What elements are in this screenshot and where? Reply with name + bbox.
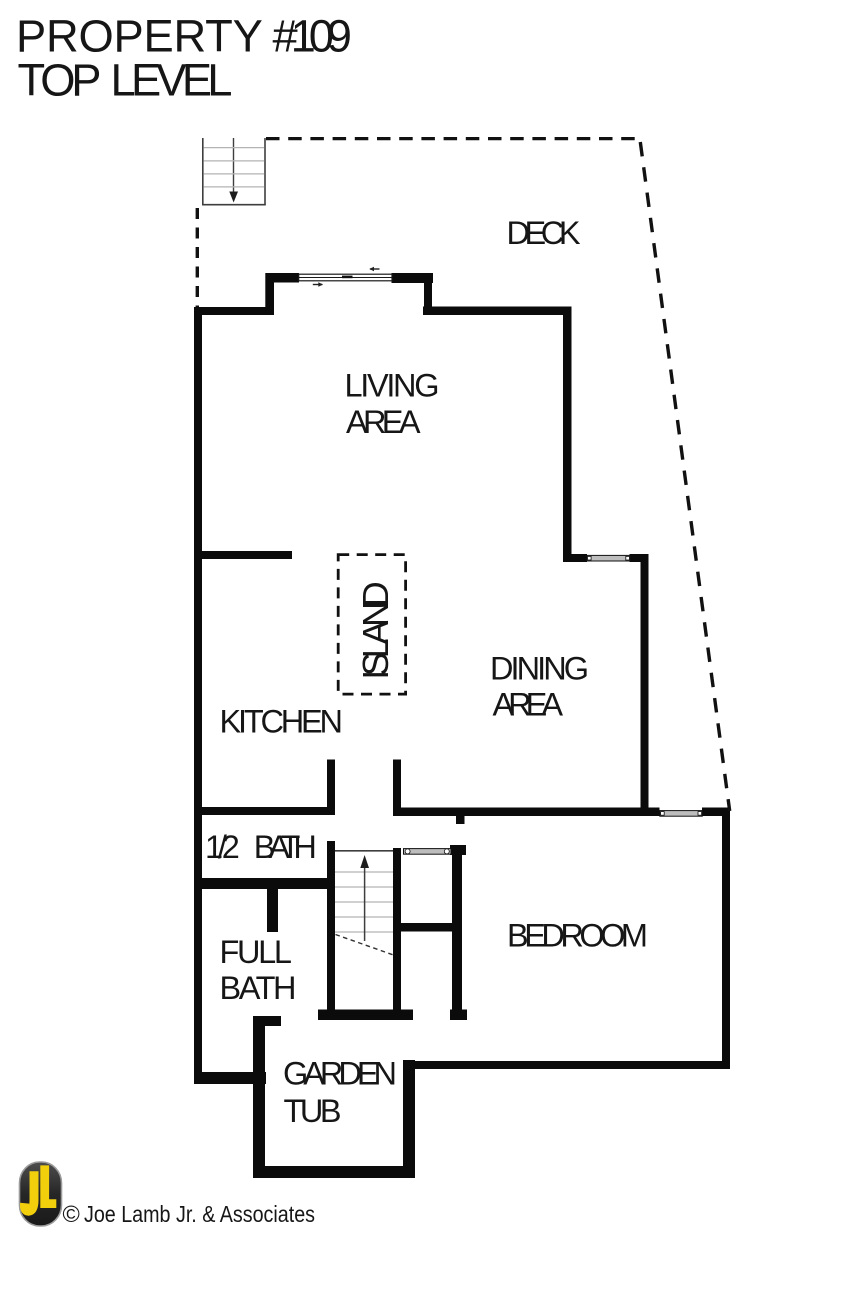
svg-text:AREA: AREA bbox=[493, 687, 564, 723]
svg-text:KITCHEN: KITCHEN bbox=[220, 704, 344, 740]
svg-text:LIVING: LIVING bbox=[345, 368, 440, 404]
svg-text:TUB: TUB bbox=[284, 1093, 342, 1129]
svg-text:DINING: DINING bbox=[490, 650, 589, 686]
svg-text:BATH: BATH bbox=[254, 829, 317, 865]
svg-text:©: © bbox=[63, 1201, 80, 1227]
svg-text:AREA: AREA bbox=[346, 404, 421, 440]
svg-text:BEDROOM: BEDROOM bbox=[507, 917, 648, 953]
svg-text:FULL: FULL bbox=[220, 934, 293, 970]
svg-text:Joe Lamb Jr. & Associates: Joe Lamb Jr. & Associates bbox=[84, 1201, 315, 1227]
svg-text:TOP: TOP bbox=[18, 54, 102, 105]
svg-text:DECK: DECK bbox=[507, 215, 581, 251]
svg-text:LEVEL: LEVEL bbox=[111, 54, 233, 105]
svg-text:1/2: 1/2 bbox=[205, 829, 240, 865]
svg-text:#109: #109 bbox=[273, 10, 353, 61]
svg-text:GARDEN: GARDEN bbox=[283, 1056, 397, 1092]
svg-text:BATH: BATH bbox=[220, 970, 297, 1006]
svg-text:ISLAND: ISLAND bbox=[355, 581, 396, 680]
